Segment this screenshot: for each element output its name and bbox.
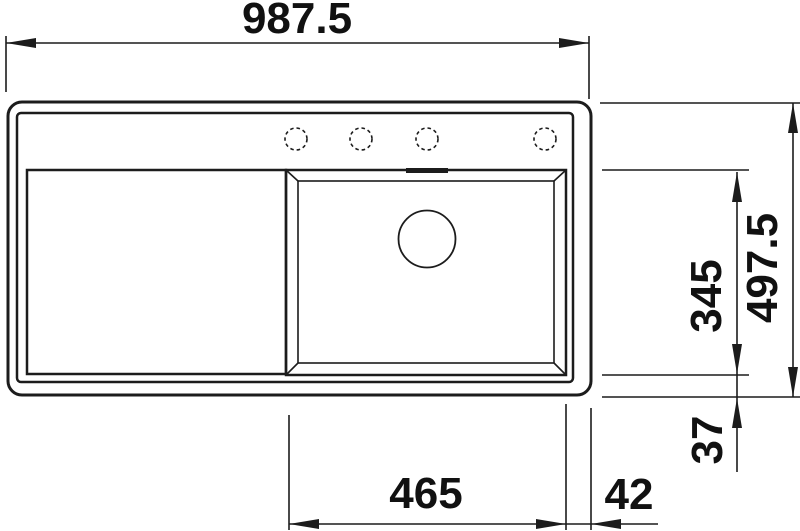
sink-outer-outline bbox=[8, 102, 591, 395]
faucet-hole-1 bbox=[285, 128, 307, 150]
sink-drawing-canvas bbox=[0, 0, 800, 531]
bowl-bevel-bottom-right bbox=[554, 363, 566, 375]
arrow-up bbox=[788, 103, 798, 133]
arrow-right bbox=[536, 519, 566, 529]
label-bowl-right-offset: 42 bbox=[605, 473, 654, 517]
dimension-overall-width bbox=[6, 36, 589, 99]
arrow-right bbox=[559, 38, 589, 48]
dimension-bowl-width bbox=[289, 404, 658, 530]
faucet-hole-2 bbox=[350, 128, 372, 150]
label-bowl-depth: 345 bbox=[685, 259, 729, 332]
arrow-up-offset bbox=[732, 398, 742, 428]
drainboard-outline bbox=[27, 170, 286, 374]
sink-rim-outline bbox=[17, 113, 573, 382]
bowl-bevel-bottom-left bbox=[286, 363, 298, 375]
faucet-hole-4 bbox=[534, 128, 556, 150]
arrow-offset-left bbox=[591, 519, 621, 529]
faucet-hole-3 bbox=[416, 128, 438, 150]
label-bowl-width: 465 bbox=[389, 472, 462, 516]
bowl-outer-outline bbox=[286, 170, 566, 375]
arrow-down bbox=[788, 367, 798, 397]
arrow-up bbox=[732, 172, 742, 202]
label-overall-width: 987.5 bbox=[242, 0, 352, 41]
label-overall-depth: 497.5 bbox=[741, 213, 785, 323]
bowl-bevel-top-left bbox=[286, 170, 298, 181]
label-bowl-bottom-offset: 37 bbox=[686, 416, 730, 465]
arrow-left bbox=[6, 38, 36, 48]
drain-hole-circle bbox=[399, 211, 456, 268]
arrow-down bbox=[732, 344, 742, 374]
overflow-slot bbox=[406, 168, 448, 173]
arrow-left bbox=[289, 519, 319, 529]
sink-technical-drawing: 987.5 497.5 345 37 465 42 bbox=[0, 0, 800, 531]
bowl-inner-outline bbox=[298, 181, 554, 363]
bowl-bevel-top-right bbox=[554, 170, 566, 181]
